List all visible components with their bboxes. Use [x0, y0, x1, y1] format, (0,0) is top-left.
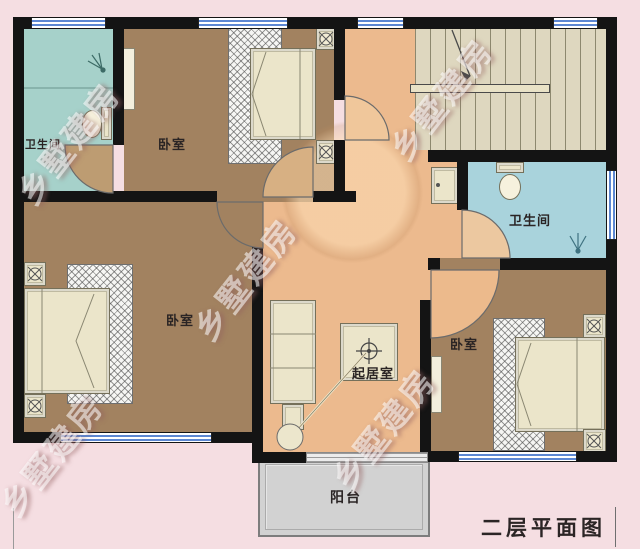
- wall-bathroom-tl-right: [113, 17, 124, 145]
- wall-stairs-bottom: [428, 150, 607, 162]
- window-top-2: [198, 18, 288, 28]
- bed-bottom-left-bedroom: [24, 288, 110, 394]
- wall-bathroom-r-left: [457, 162, 468, 210]
- wall-corridor-top: [334, 28, 345, 100]
- window-top-1: [31, 18, 106, 28]
- nightstand-bl-a: [24, 262, 46, 286]
- wall-corridor-bottom: [334, 140, 345, 202]
- nightstand-br-a: [583, 314, 606, 338]
- window-top-3: [357, 18, 404, 28]
- sofa-chaise: [282, 404, 304, 430]
- wall-bathroom-r-bottom-stub: [428, 258, 440, 270]
- wall-outer-left: [13, 17, 24, 443]
- sofa: [270, 300, 316, 404]
- window-right-bathroom: [607, 170, 616, 240]
- window-top-4: [553, 18, 598, 28]
- nightstand-top-b: [316, 140, 336, 164]
- frame-line-right: [615, 507, 616, 547]
- floor-plan: 卫生间 卧室 卫生间 卧室 起居室 卧室 阳台 二层平面图 乡墅建房 乡墅建房 …: [0, 0, 640, 549]
- bed-bottom-right-bedroom: [515, 337, 605, 432]
- toilet-tank-right: [496, 162, 524, 173]
- wall-living-bottom: [258, 452, 306, 463]
- wall-bathroom-r-bottom: [500, 258, 607, 270]
- label-bedroom-top: 卧室: [158, 134, 186, 153]
- window-bottom-right: [458, 452, 577, 461]
- plan-title: 二层平面图: [481, 512, 606, 542]
- label-living-room: 起居室: [352, 363, 394, 382]
- nightstand-bl-b: [24, 394, 46, 418]
- toilet-bowl-right: [499, 174, 521, 200]
- label-bedroom-bottom-right: 卧室: [450, 334, 478, 353]
- bed-top-bedroom: [250, 48, 316, 140]
- label-bathroom-right: 卫生间: [509, 210, 551, 229]
- nightstand-br-b: [583, 429, 606, 453]
- nightstand-top-a: [316, 28, 336, 50]
- washbasin: [431, 167, 458, 204]
